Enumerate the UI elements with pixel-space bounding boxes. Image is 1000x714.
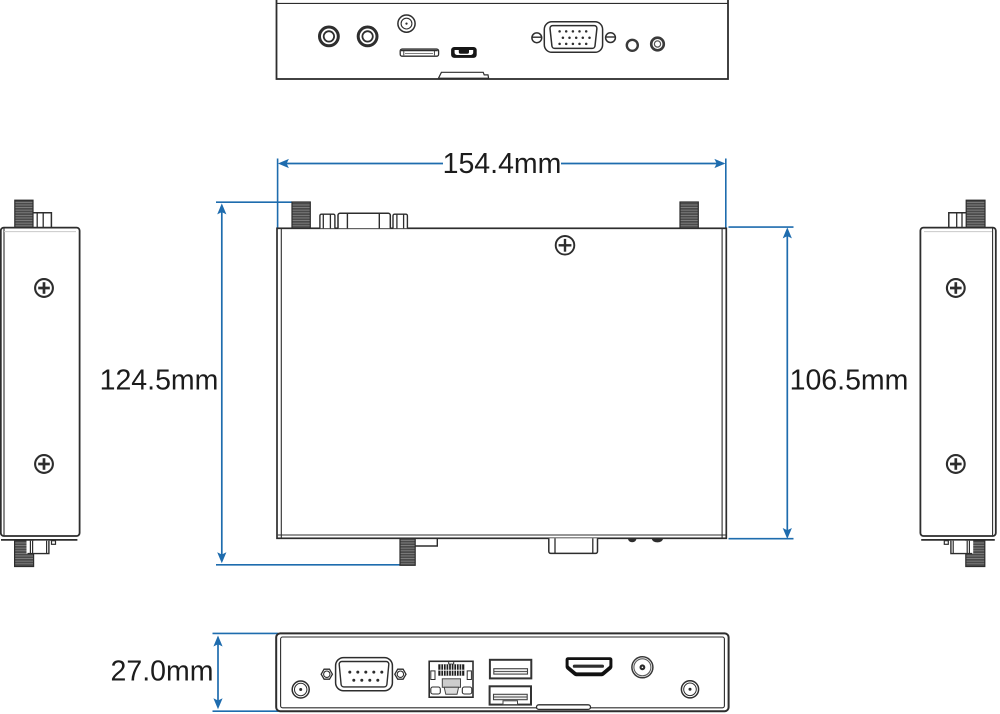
svg-text:106.5mm: 106.5mm bbox=[790, 365, 909, 397]
svg-text:124.5mm: 124.5mm bbox=[100, 365, 219, 397]
svg-text:27.0mm: 27.0mm bbox=[111, 656, 214, 688]
svg-text:154.4mm: 154.4mm bbox=[443, 148, 562, 180]
